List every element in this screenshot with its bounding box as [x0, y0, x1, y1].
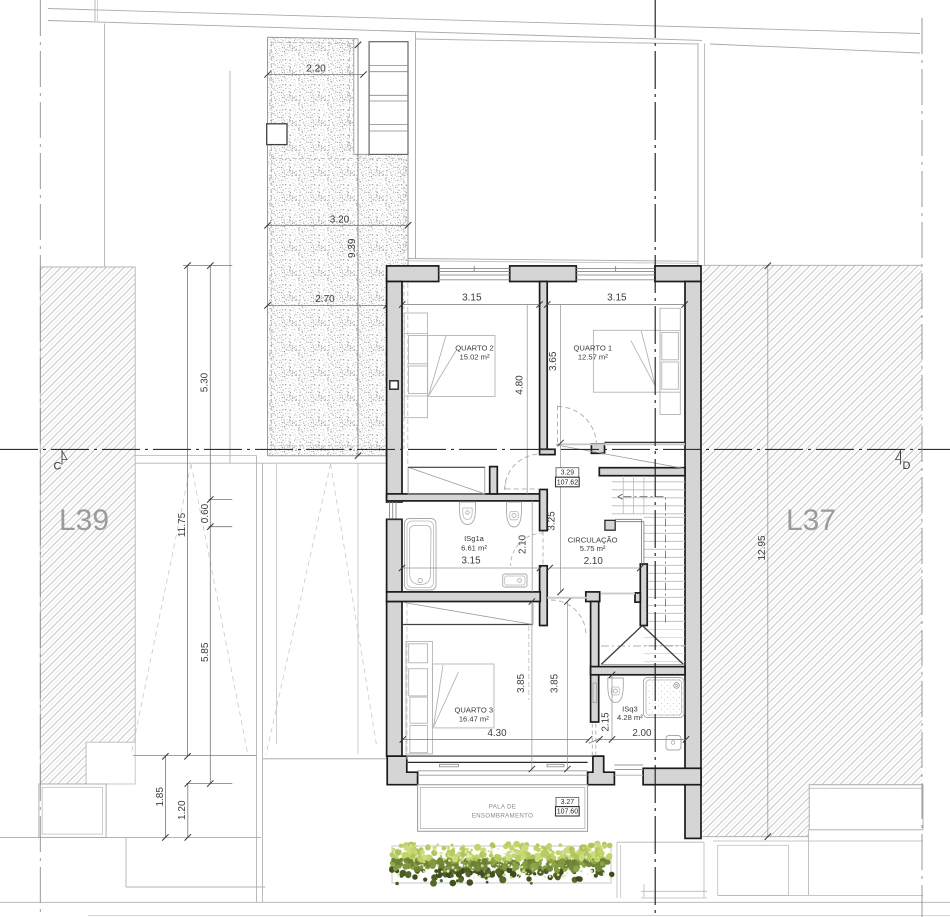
svg-text:ISg1a: ISg1a	[464, 534, 485, 543]
svg-text:1.85: 1.85	[155, 787, 166, 807]
svg-text:3.27: 3.27	[561, 799, 575, 806]
svg-text:ENSOMBRAMENTO: ENSOMBRAMENTO	[472, 812, 534, 819]
svg-text:1.20: 1.20	[177, 800, 188, 820]
svg-text:QUARTO 3: QUARTO 3	[455, 706, 494, 715]
svg-text:2.10: 2.10	[517, 534, 528, 554]
svg-text:15.02 m²: 15.02 m²	[460, 353, 490, 362]
svg-text:PALA DE: PALA DE	[489, 804, 516, 811]
svg-text:3.25: 3.25	[547, 511, 558, 531]
svg-text:QUARTO 2: QUARTO 2	[455, 344, 494, 353]
svg-text:12.95: 12.95	[757, 535, 768, 560]
svg-text:C: C	[54, 461, 62, 473]
svg-text:3.15: 3.15	[607, 293, 627, 304]
svg-text:3.15: 3.15	[461, 556, 481, 567]
svg-text:L39: L39	[59, 504, 109, 537]
svg-text:QUARTO 1: QUARTO 1	[574, 344, 613, 353]
svg-text:5.85: 5.85	[200, 642, 211, 662]
svg-text:107.60: 107.60	[557, 809, 579, 816]
svg-text:2.15: 2.15	[600, 712, 611, 732]
svg-text:L37: L37	[786, 504, 836, 537]
svg-text:2.20: 2.20	[306, 64, 326, 75]
svg-text:12.57 m²: 12.57 m²	[578, 353, 608, 362]
svg-text:9.39: 9.39	[347, 238, 358, 258]
svg-text:0.60: 0.60	[200, 503, 211, 523]
svg-text:D: D	[903, 460, 911, 472]
svg-text:6.61 m²: 6.61 m²	[461, 543, 487, 552]
svg-text:3.65: 3.65	[548, 351, 559, 371]
svg-text:3.85: 3.85	[516, 673, 527, 693]
svg-text:5.30: 5.30	[200, 372, 211, 392]
svg-text:3.85: 3.85	[549, 673, 560, 693]
svg-text:4.28 m²: 4.28 m²	[617, 713, 643, 722]
svg-text:2.00: 2.00	[632, 728, 652, 739]
svg-text:4.30: 4.30	[487, 728, 507, 739]
svg-text:4.80: 4.80	[514, 375, 525, 395]
svg-text:107.62: 107.62	[557, 479, 579, 486]
svg-text:3.20: 3.20	[330, 214, 350, 225]
svg-text:CIRCULAÇÃO: CIRCULAÇÃO	[568, 535, 618, 544]
svg-text:16.47 m²: 16.47 m²	[459, 714, 489, 723]
svg-text:2.70: 2.70	[315, 294, 335, 305]
svg-text:5.75 m²: 5.75 m²	[580, 544, 606, 553]
svg-text:11.75: 11.75	[177, 512, 188, 537]
svg-text:2.10: 2.10	[584, 556, 604, 567]
svg-text:3.15: 3.15	[462, 293, 482, 304]
svg-text:3.29: 3.29	[561, 470, 575, 477]
